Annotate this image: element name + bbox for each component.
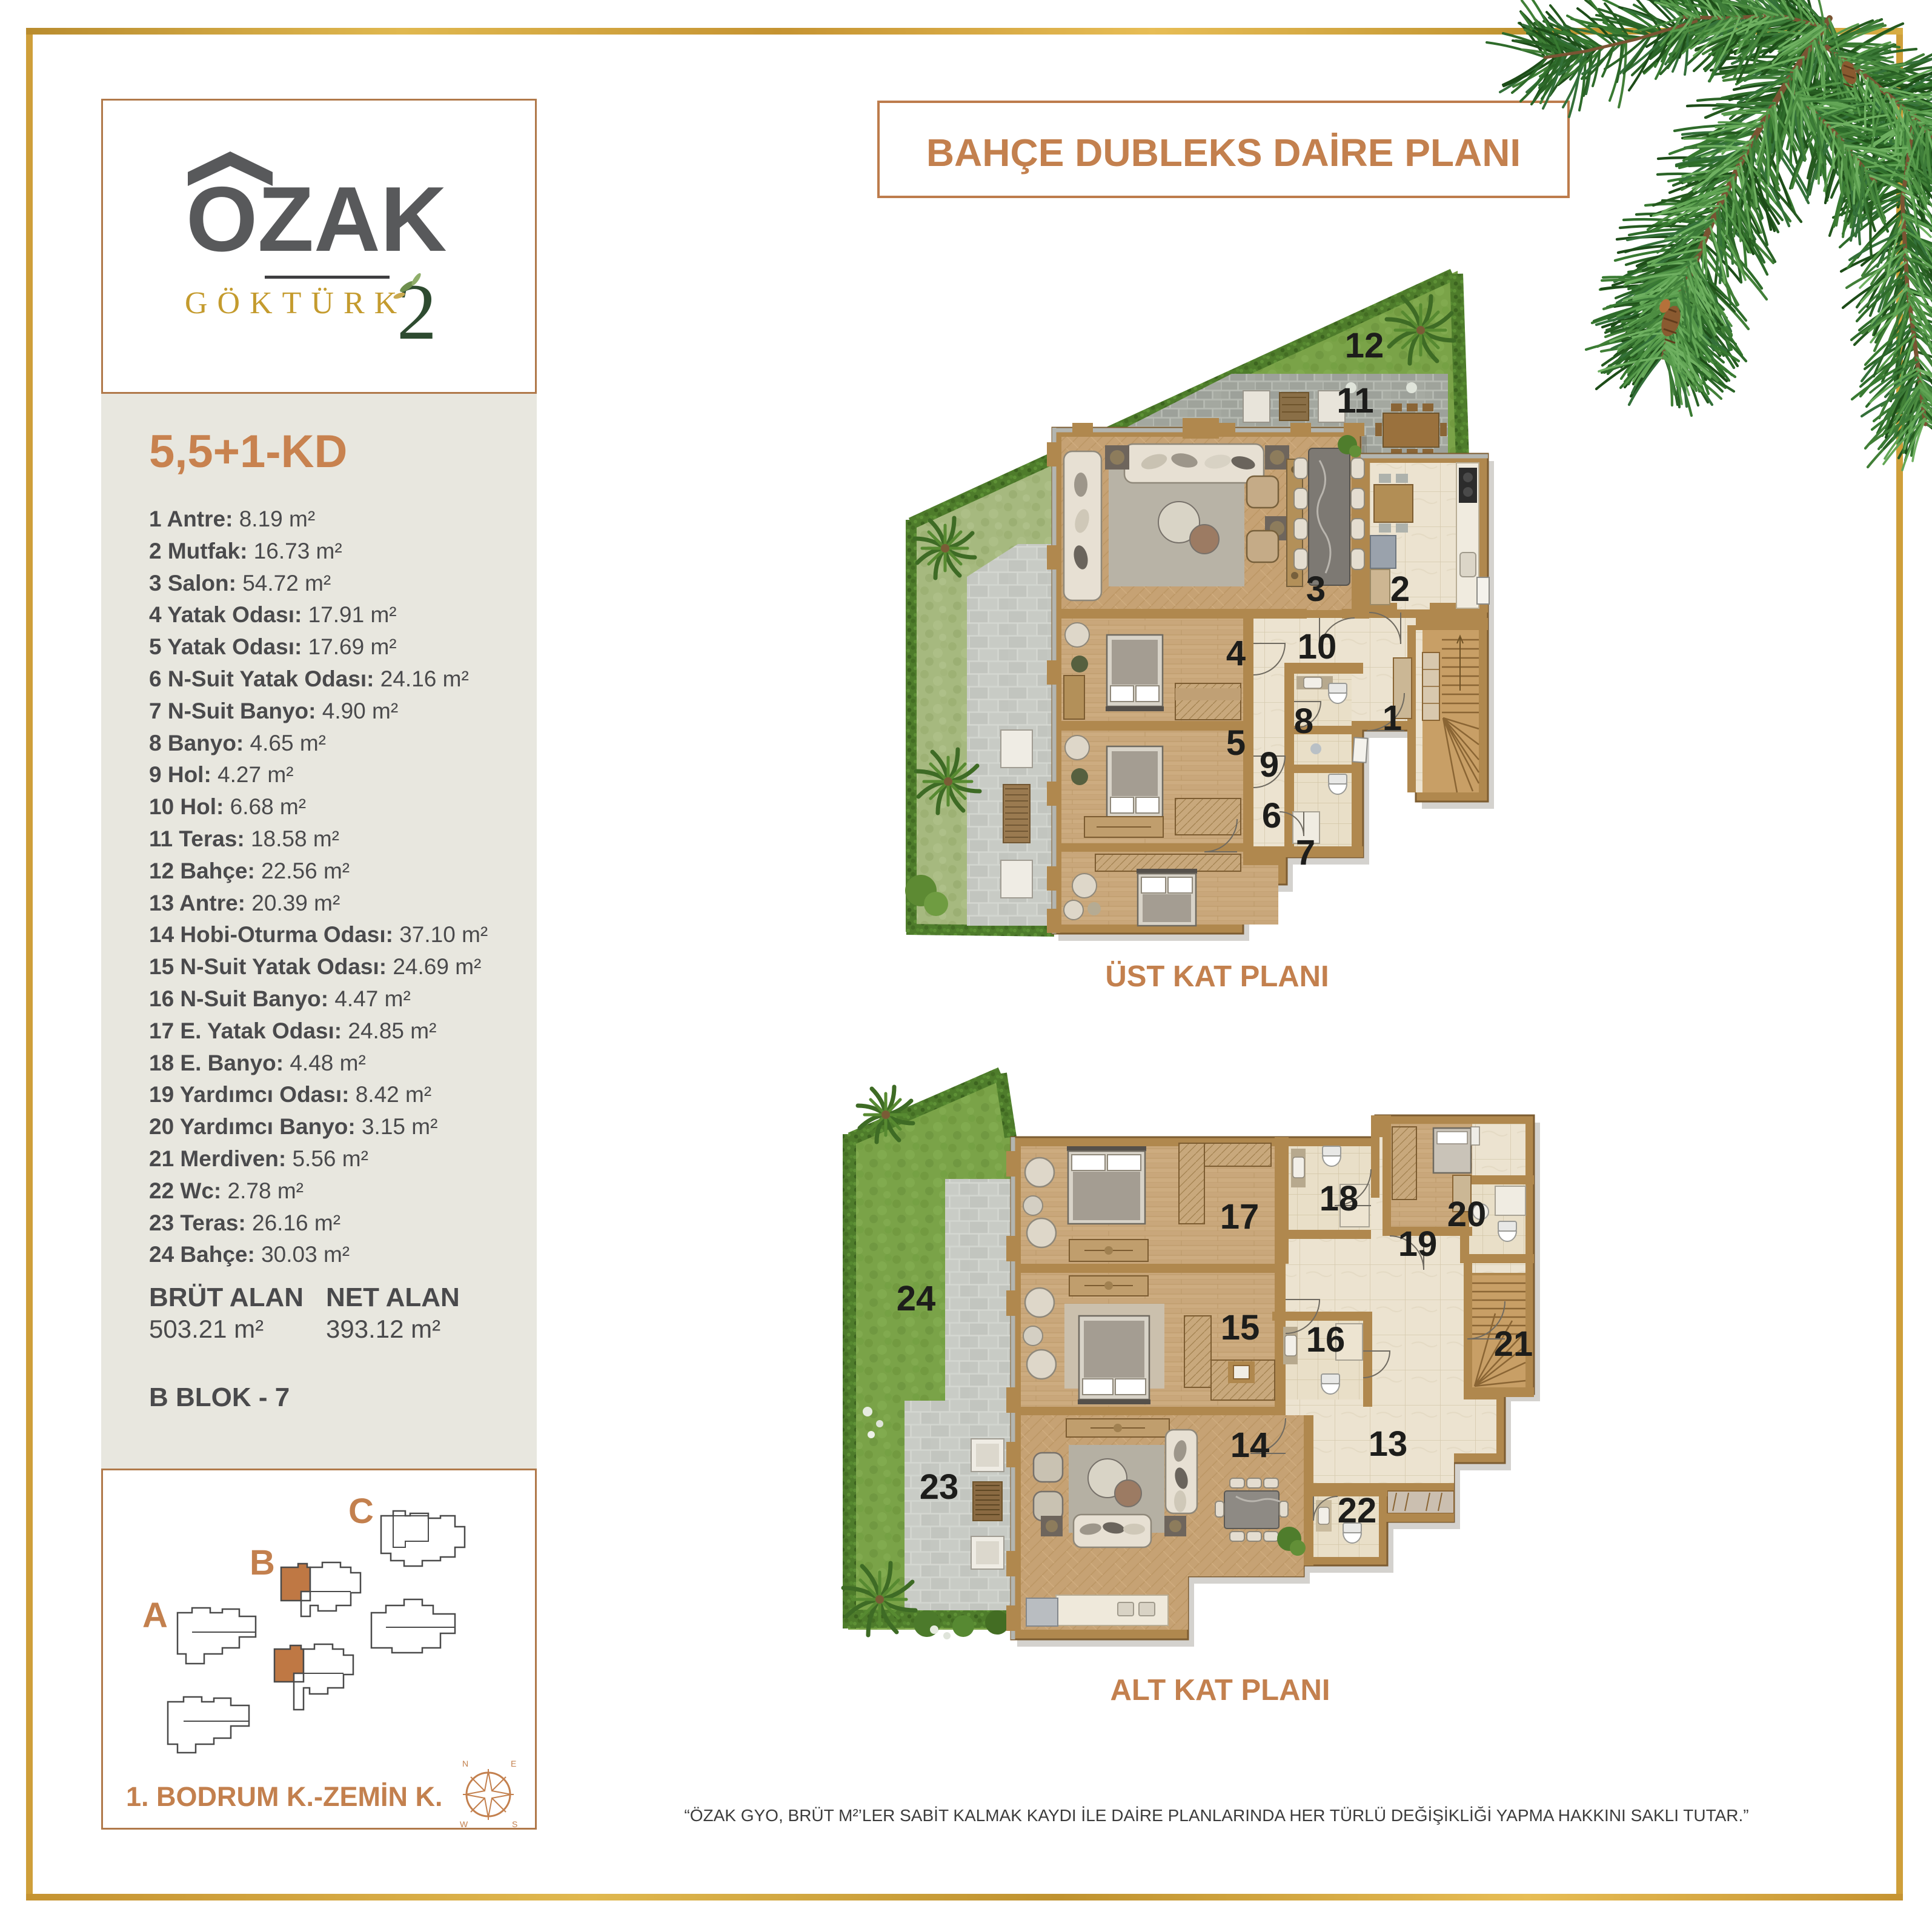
svg-text:10: 10 xyxy=(1298,627,1337,666)
svg-text:19: 19 xyxy=(1398,1224,1438,1264)
svg-text:3: 3 xyxy=(1306,569,1326,609)
svg-text:6: 6 xyxy=(1262,796,1281,835)
svg-text:22: 22 xyxy=(1338,1491,1377,1530)
svg-text:15: 15 xyxy=(1221,1308,1260,1347)
svg-text:11: 11 xyxy=(1336,381,1373,420)
svg-text:5: 5 xyxy=(1226,723,1246,763)
svg-text:1: 1 xyxy=(1383,699,1402,738)
svg-text:20: 20 xyxy=(1447,1195,1487,1234)
svg-text:9: 9 xyxy=(1260,745,1279,785)
svg-text:16: 16 xyxy=(1306,1320,1346,1359)
svg-text:23: 23 xyxy=(920,1467,959,1507)
svg-text:8: 8 xyxy=(1294,702,1313,741)
svg-text:4: 4 xyxy=(1226,634,1246,673)
svg-text:21: 21 xyxy=(1494,1324,1533,1364)
svg-text:14: 14 xyxy=(1230,1426,1270,1465)
svg-text:24: 24 xyxy=(897,1279,936,1318)
svg-text:7: 7 xyxy=(1296,833,1315,872)
svg-text:12: 12 xyxy=(1345,326,1384,365)
svg-text:2: 2 xyxy=(1390,569,1410,609)
svg-text:13: 13 xyxy=(1369,1424,1408,1464)
svg-text:18: 18 xyxy=(1320,1179,1359,1218)
svg-text:17: 17 xyxy=(1220,1197,1260,1237)
